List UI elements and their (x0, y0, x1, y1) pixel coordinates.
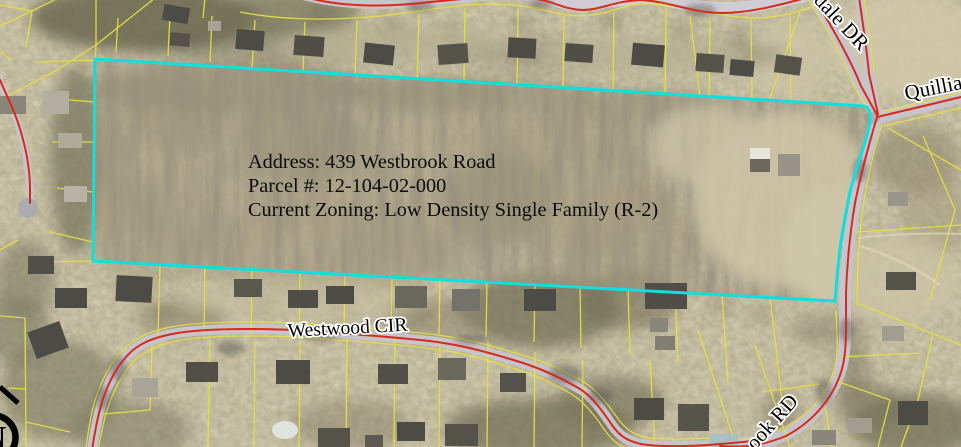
svg-text:Parcel #: 12-104-02-000: Parcel #: 12-104-02-000 (248, 175, 446, 197)
svg-text:Address: 439 Westbrook Road: Address: 439 Westbrook Road (248, 151, 496, 173)
svg-text:Current Zoning: Low Density Si: Current Zoning: Low Density Single Famil… (248, 199, 658, 221)
svg-text:N: N (0, 420, 7, 447)
